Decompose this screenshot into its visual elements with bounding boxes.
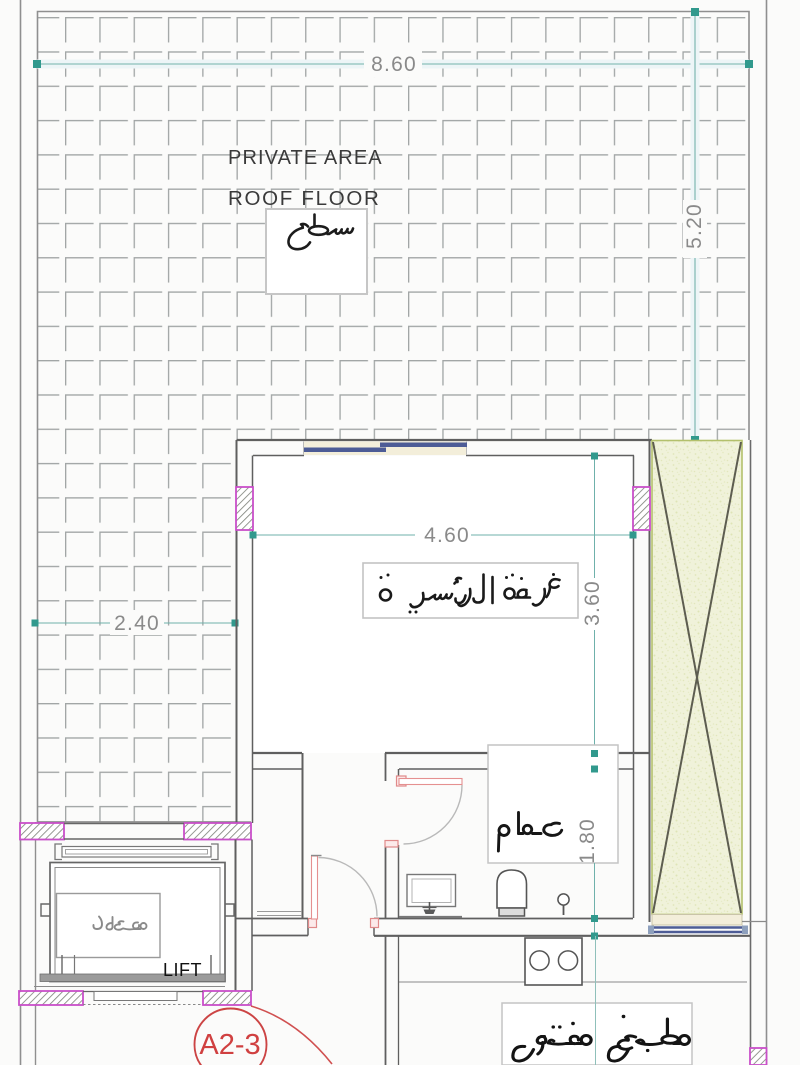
svg-text:LIFT: LIFT: [163, 960, 202, 980]
svg-text:4.60: 4.60: [424, 524, 470, 547]
svg-text:ROOF FLOOR: ROOF FLOOR: [228, 187, 381, 210]
svg-text:2.40: 2.40: [114, 612, 160, 635]
svg-text:A2-3: A2-3: [199, 1029, 260, 1061]
svg-text:PRIVATE AREA: PRIVATE AREA: [228, 147, 383, 169]
svg-text:5.20: 5.20: [683, 203, 706, 249]
svg-text:8.60: 8.60: [371, 53, 417, 76]
svg-text:3.60: 3.60: [581, 580, 604, 626]
svg-text:1.80: 1.80: [576, 818, 599, 864]
